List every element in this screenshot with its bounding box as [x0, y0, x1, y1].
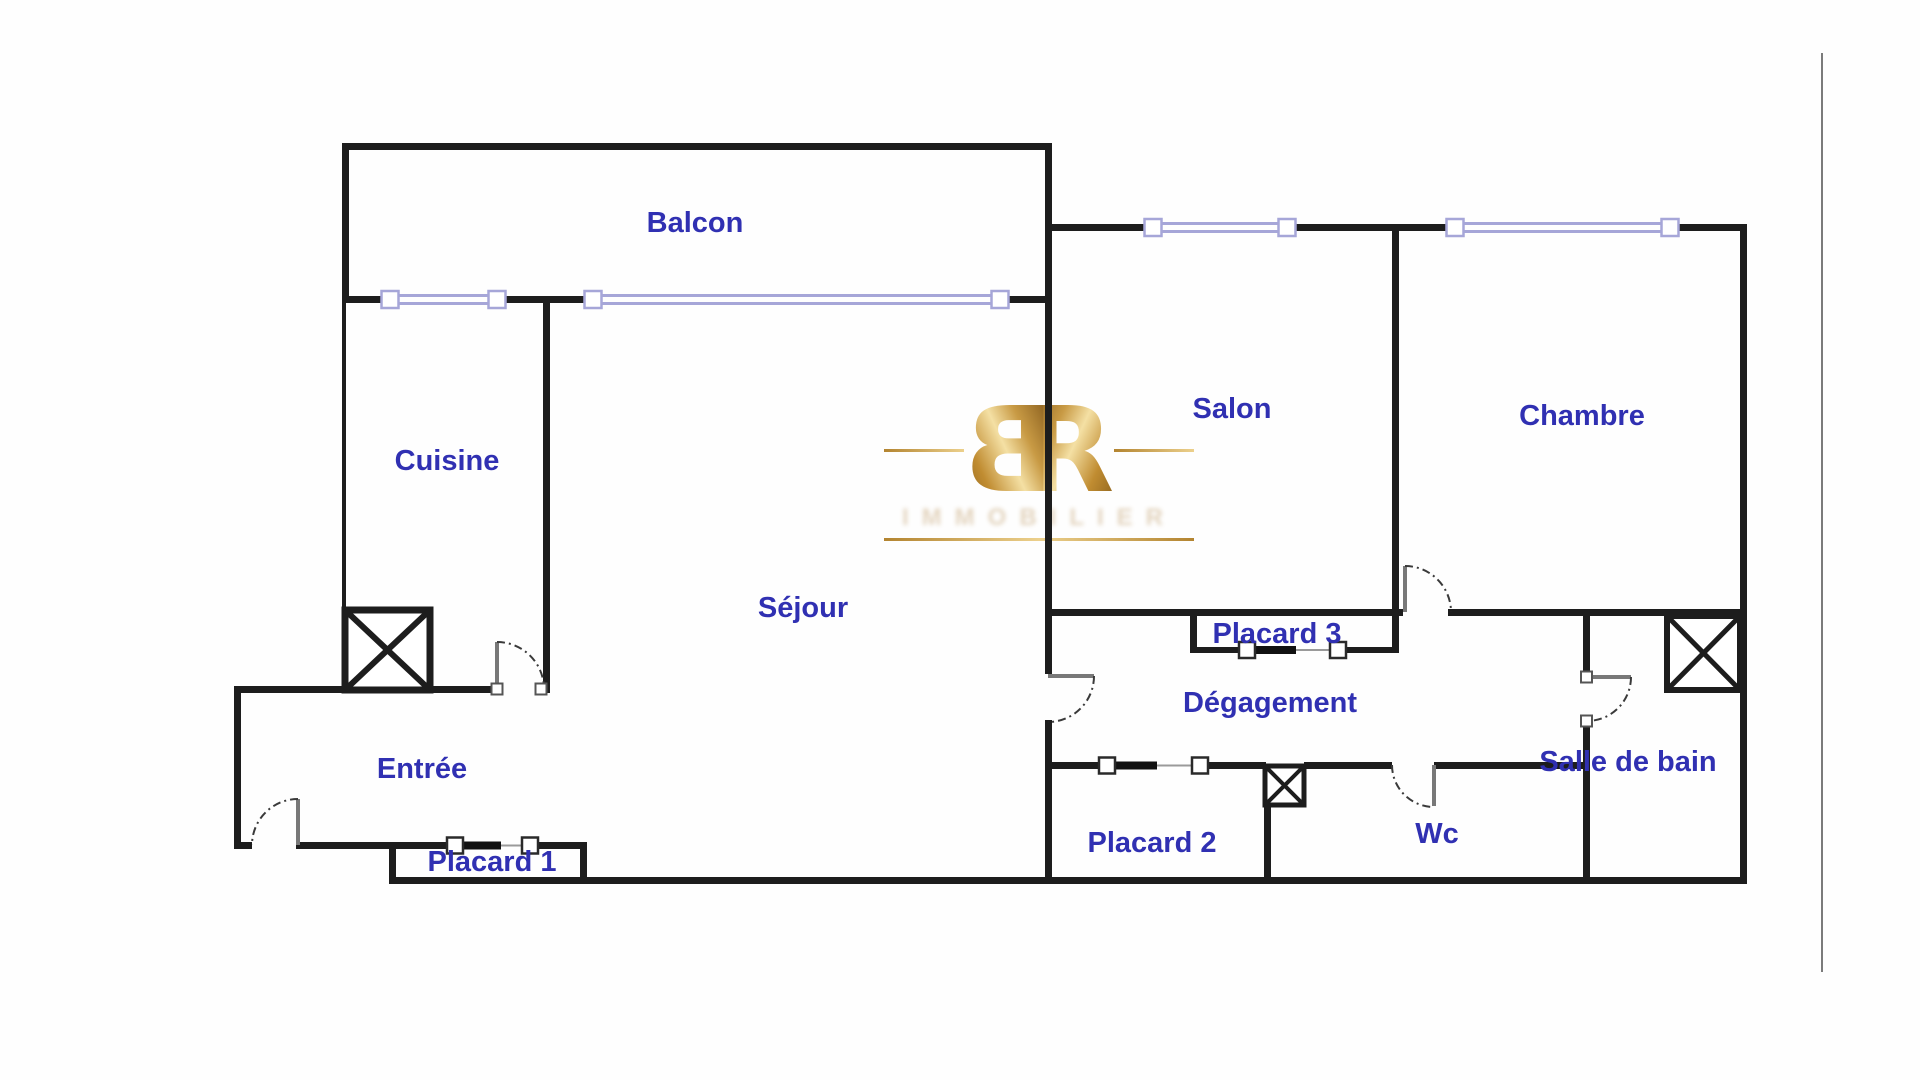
shaft-hatch-icon [1265, 766, 1304, 805]
window-icon [1145, 219, 1296, 236]
room-label-sejour: Séjour [758, 592, 848, 624]
closet-front-symbols [447, 642, 1346, 854]
window-icon [382, 291, 506, 308]
door-swing-icon [1405, 566, 1451, 612]
room-label-chambre: Chambre [1519, 400, 1645, 432]
shaft-hatch-icon [345, 610, 430, 690]
room-label-balcon: Balcon [647, 207, 744, 239]
page-edge-divider-line [1821, 53, 1823, 972]
window-symbols [382, 219, 1679, 308]
room-label-entree: Entrée [377, 753, 467, 785]
room-label-salle-de-bain: Salle de bain [1539, 746, 1716, 778]
window-icon [1447, 219, 1679, 236]
floor-plan-canvas: Balcon Cuisine Séjour Salon Chambre Entr… [0, 0, 1920, 1080]
shaft-hatch-icon [1667, 616, 1740, 690]
door-swing-icon [1581, 672, 1631, 727]
room-label-placard1: Placard 1 [428, 846, 557, 878]
shaft-boxes [345, 610, 1740, 805]
door-symbols [252, 566, 1631, 845]
room-label-cuisine: Cuisine [395, 445, 500, 477]
door-swing-icon [492, 642, 547, 695]
room-label-wc: Wc [1415, 818, 1459, 850]
door-swing-icon [1392, 765, 1434, 807]
window-icon [585, 291, 1009, 308]
room-label-salon: Salon [1193, 393, 1272, 425]
sliding-door-icon [1099, 758, 1208, 774]
room-label-degagement: Dégagement [1183, 687, 1357, 719]
room-label-placard2: Placard 2 [1088, 827, 1217, 859]
room-label-placard3: Placard 3 [1213, 618, 1342, 650]
door-swing-icon [252, 799, 298, 845]
door-swing-icon [1048, 676, 1094, 722]
floor-plan-page: B R IMMOBILIER [0, 0, 1920, 1080]
